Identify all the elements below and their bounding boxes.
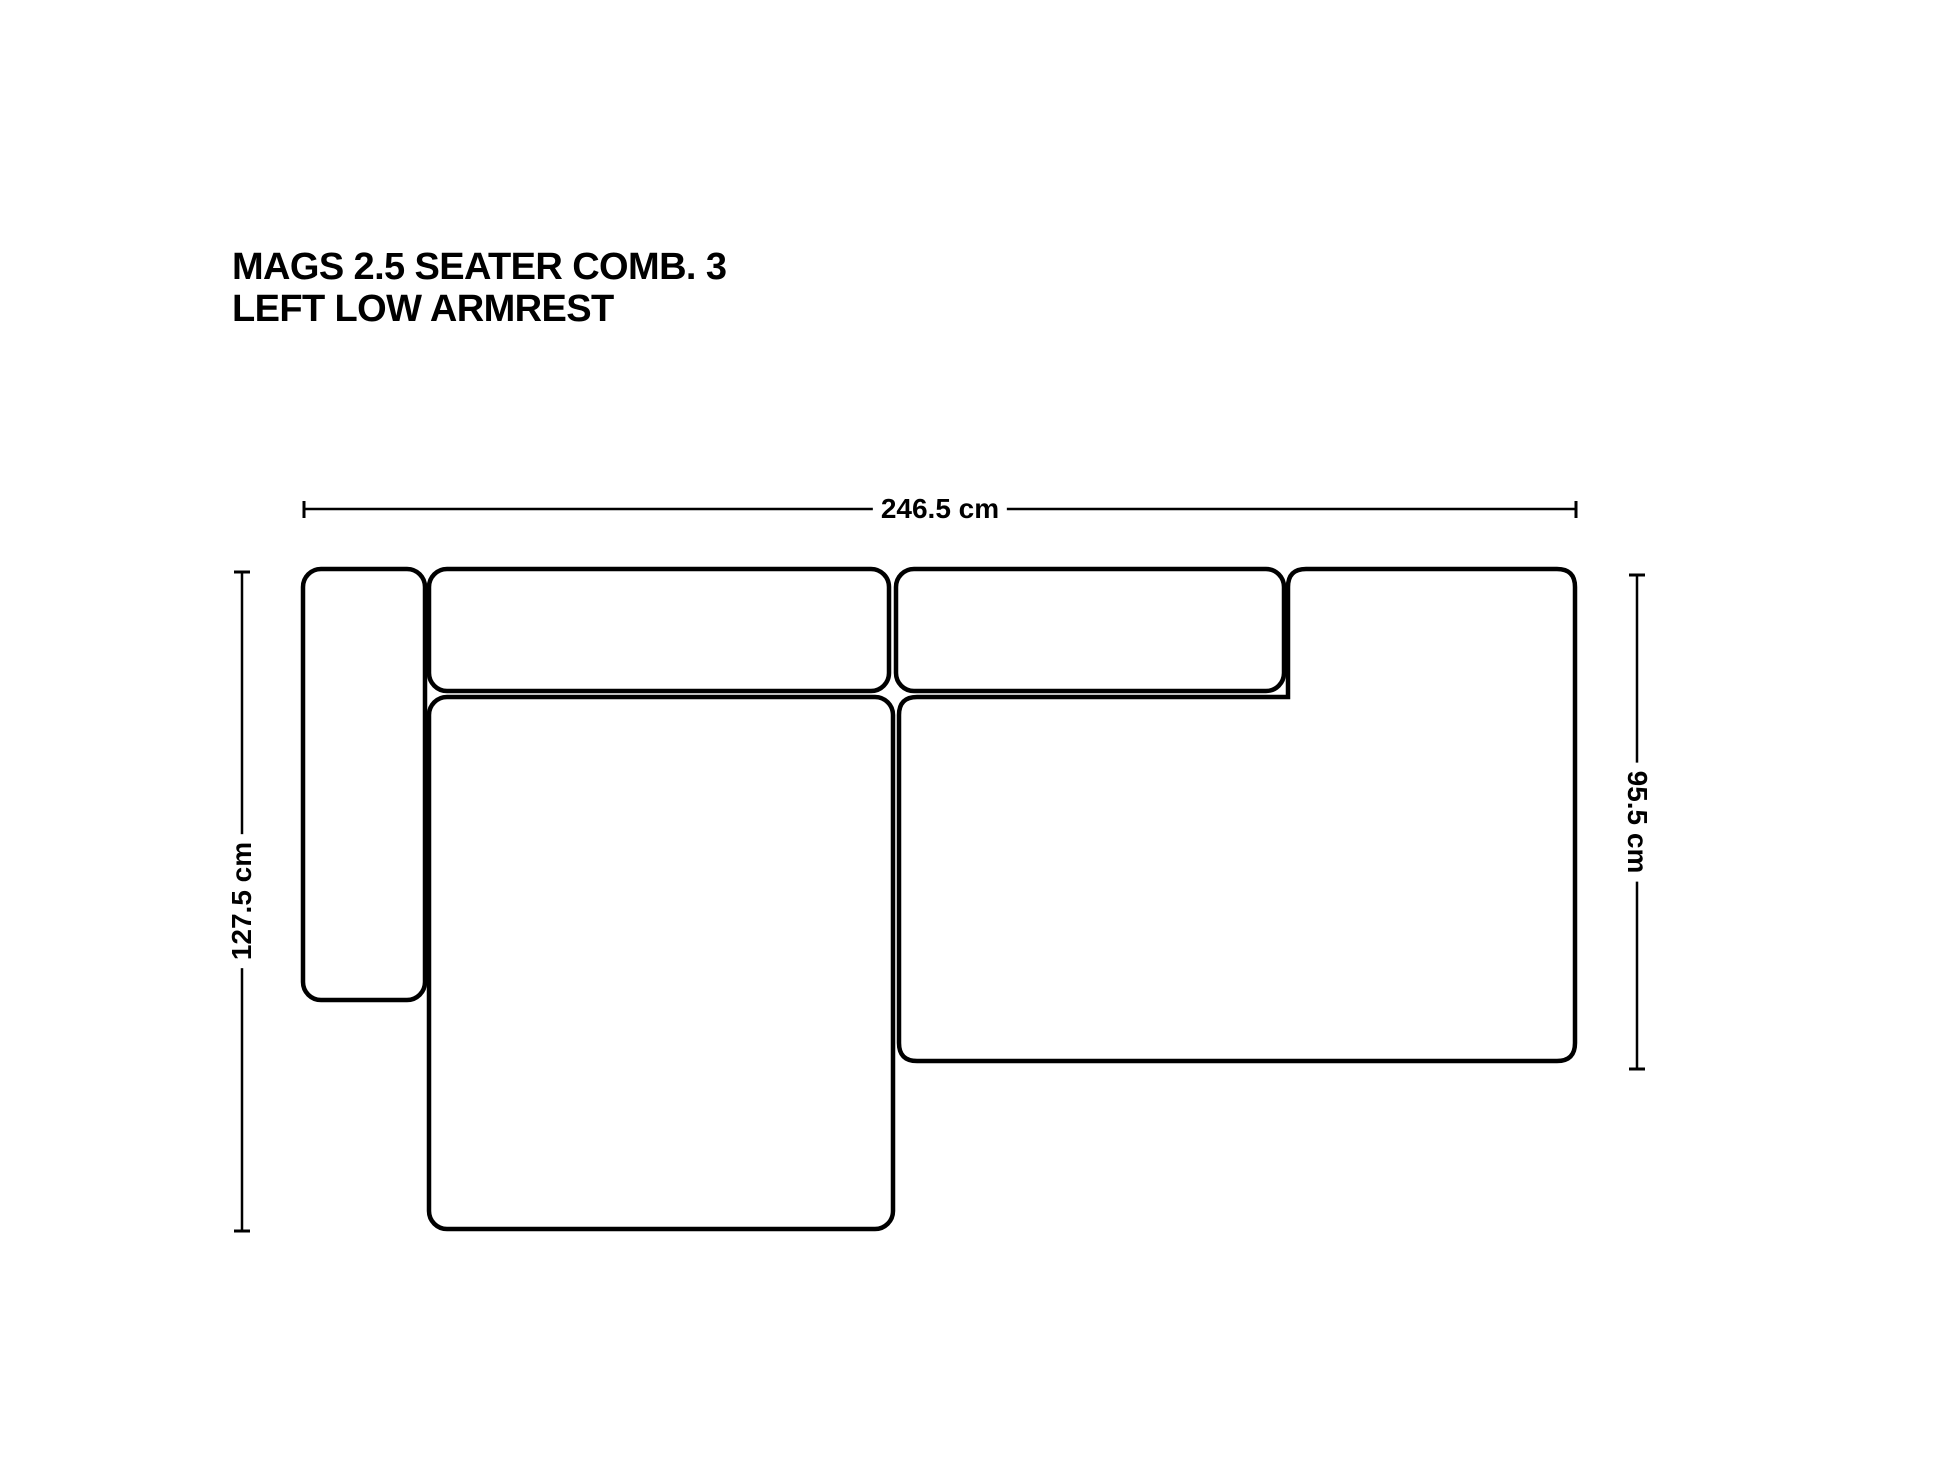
chaise-module-outline (429, 697, 893, 1229)
sofa-dimension-drawing (0, 0, 1946, 1464)
diagram-canvas: MAGS 2.5 SEATER COMB. 3 LEFT LOW ARMREST… (0, 0, 1946, 1464)
backrest-right-outline (896, 569, 1284, 691)
overall-depth-dimension-label: 127.5 cm (224, 834, 260, 968)
seat-depth-dimension-label: 95.5 cm (1619, 763, 1655, 882)
sofa-outline-group (303, 569, 1575, 1229)
overall-width-dimension-label: 246.5 cm (873, 491, 1007, 527)
product-title: MAGS 2.5 SEATER COMB. 3 LEFT LOW ARMREST (232, 246, 726, 330)
product-title-line2: LEFT LOW ARMREST (232, 288, 726, 330)
backrest-left-outline (429, 569, 889, 691)
left-low-armrest-outline (303, 569, 425, 1000)
product-title-line1: MAGS 2.5 SEATER COMB. 3 (232, 246, 726, 288)
